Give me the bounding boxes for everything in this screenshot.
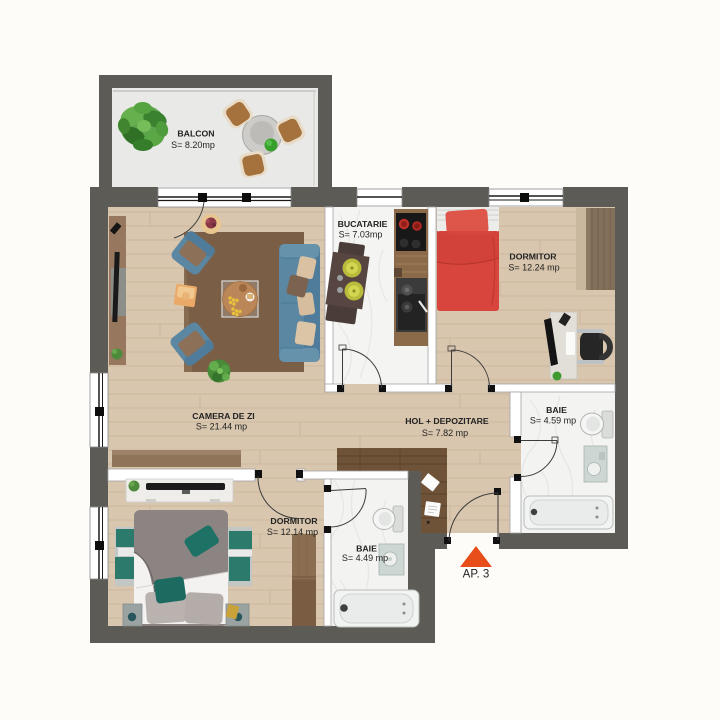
svg-text:BUCATARIE: BUCATARIE — [338, 219, 388, 229]
svg-text:S= 21.44 mp: S= 21.44 mp — [196, 422, 247, 432]
svg-text:S= 4.59 mp: S= 4.59 mp — [530, 416, 576, 426]
svg-text:AP. 3: AP. 3 — [463, 569, 490, 581]
svg-text:DORMITOR: DORMITOR — [270, 516, 318, 526]
svg-text:DORMITOR: DORMITOR — [509, 252, 557, 262]
svg-text:BAIE: BAIE — [546, 405, 567, 415]
svg-text:S= 4.49 mp: S= 4.49 mp — [342, 553, 388, 563]
svg-text:BALCON: BALCON — [177, 129, 214, 139]
svg-text:HOL + DEPOZITARE: HOL + DEPOZITARE — [405, 416, 489, 426]
svg-text:S= 12.24 mp: S= 12.24 mp — [508, 263, 559, 273]
svg-text:S= 7.82 mp: S= 7.82 mp — [422, 428, 468, 438]
svg-text:BAIE: BAIE — [356, 544, 377, 554]
svg-text:S= 8.20mp: S= 8.20mp — [171, 140, 215, 150]
svg-text:CAMERA DE ZI: CAMERA DE ZI — [192, 411, 254, 421]
svg-text:S= 7.03mp: S= 7.03mp — [339, 230, 383, 240]
svg-text:S= 12.14 mp: S= 12.14 mp — [267, 527, 318, 537]
